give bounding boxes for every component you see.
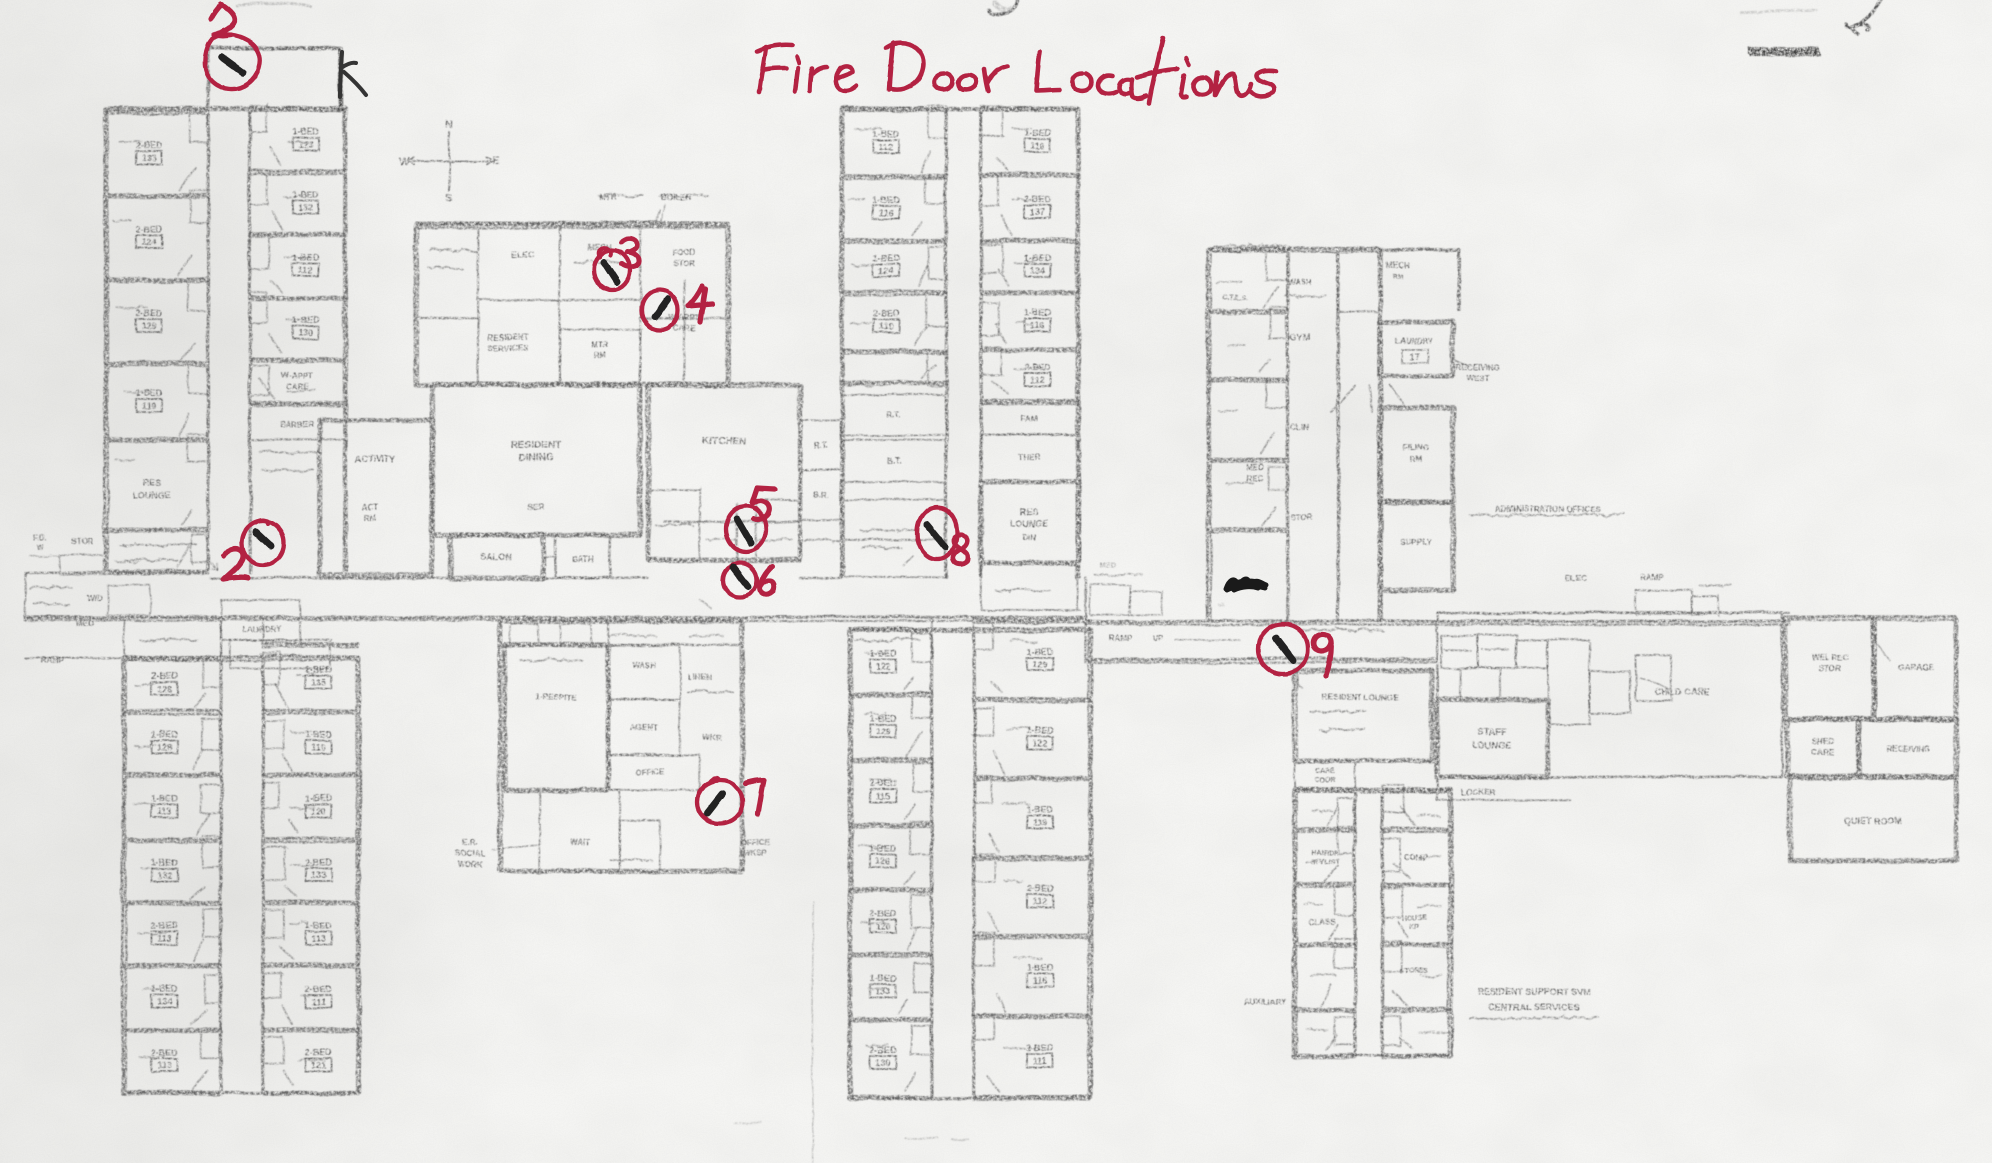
svg-text:135: 135 (311, 678, 326, 688)
svg-text:1-RESPITE: 1-RESPITE (535, 693, 577, 702)
svg-text:LOUNGE: LOUNGE (1473, 740, 1512, 750)
svg-text:112: 112 (879, 142, 894, 152)
svg-text:COMP: COMP (1404, 853, 1429, 862)
svg-text:B.T.: B.T. (887, 457, 901, 466)
svg-text:HOUSE: HOUSE (1402, 915, 1427, 922)
svg-text:2-BED: 2-BED (1026, 884, 1054, 894)
svg-text:122: 122 (1032, 739, 1047, 749)
svg-text:W-APPT: W-APPT (281, 371, 313, 380)
svg-text:116: 116 (1033, 976, 1048, 986)
svg-text:1-BED: 1-BED (1026, 963, 1054, 973)
svg-text:RAMP: RAMP (40, 656, 64, 665)
svg-text:MED: MED (1246, 463, 1264, 472)
svg-text:KP: KP (1409, 924, 1419, 931)
svg-text:2-BED: 2-BED (135, 224, 163, 234)
svg-text:DIN: DIN (1022, 533, 1036, 542)
svg-text:RAMP: RAMP (1108, 634, 1132, 643)
svg-text:1-BED: 1-BED (869, 974, 897, 984)
svg-text:SERVICES: SERVICES (488, 344, 529, 353)
svg-text:BATH: BATH (572, 555, 594, 564)
svg-text:WASH: WASH (632, 661, 656, 670)
svg-text:HAIRDR: HAIRDR (1311, 850, 1338, 857)
svg-text:1-BED: 1-BED (151, 730, 179, 740)
svg-text:1-BED: 1-BED (1026, 805, 1054, 815)
svg-text:RM: RM (364, 513, 377, 522)
svg-text:1-BED: 1-BED (305, 794, 333, 804)
svg-text:WAIT: WAIT (570, 838, 590, 847)
svg-text:SHED: SHED (1812, 737, 1834, 746)
svg-text:119: 119 (879, 322, 894, 332)
svg-text:RESIDENT SUPPORT SVM: RESIDENT SUPPORT SVM (1477, 987, 1591, 997)
svg-text:128: 128 (157, 684, 172, 694)
svg-text:ELEC: ELEC (1565, 574, 1587, 583)
svg-text:E: E (492, 155, 499, 167)
svg-text:SOCIAL: SOCIAL (455, 849, 485, 858)
svg-text:STOR: STOR (673, 259, 695, 268)
svg-text:116: 116 (879, 208, 894, 218)
svg-text:2-BED: 2-BED (151, 671, 179, 681)
svg-text:RES: RES (143, 478, 162, 488)
svg-text:CENTRAL SERVICES: CENTRAL SERVICES (1489, 1002, 1580, 1012)
svg-text:1-BED: 1-BED (292, 190, 320, 200)
svg-text:GYM: GYM (1290, 332, 1311, 342)
svg-text:115: 115 (876, 792, 891, 802)
svg-text:133: 133 (141, 153, 156, 163)
svg-text:FOOD: FOOD (672, 248, 695, 257)
svg-text:sk: sk (1218, 603, 1225, 609)
svg-text:W: W (399, 156, 410, 168)
svg-text:STYLIST: STYLIST (1311, 859, 1341, 866)
svg-text:R.T.: R.T. (887, 411, 901, 420)
svg-text:RM: RM (594, 351, 607, 360)
svg-text:128: 128 (157, 743, 172, 753)
svg-text:RES: RES (1020, 507, 1039, 517)
svg-text:ACT: ACT (362, 503, 379, 512)
svg-text:F.D.: F.D. (33, 533, 47, 542)
svg-text:W/D: W/D (87, 594, 103, 603)
svg-text:BARBER: BARBER (280, 420, 314, 429)
svg-text:WASH: WASH (1288, 278, 1312, 287)
svg-text:E.R.: E.R. (462, 838, 478, 847)
svg-text:137: 137 (1030, 207, 1045, 217)
svg-text:B.R.: B.R. (813, 491, 829, 500)
svg-text:S: S (445, 192, 452, 204)
svg-text:2-BED: 2-BED (305, 1048, 333, 1058)
svg-text:MECH: MECH (1386, 261, 1410, 270)
svg-text:130: 130 (298, 328, 313, 338)
svg-text:AUXILIARY: AUXILIARY (1244, 998, 1287, 1007)
svg-text:121: 121 (311, 1061, 326, 1071)
svg-text:1-BED: 1-BED (872, 253, 900, 263)
svg-text:RECEIVING: RECEIVING (1886, 745, 1930, 754)
svg-text:CHILD CARE: CHILD CARE (1654, 687, 1710, 697)
svg-text:CARE: CARE (673, 324, 696, 333)
svg-text:113: 113 (157, 934, 172, 944)
svg-text:124: 124 (141, 237, 156, 247)
svg-text:1-BED: 1-BED (151, 858, 179, 868)
svg-text:WEL REC: WEL REC (1812, 653, 1849, 662)
svg-text:STOR: STOR (71, 537, 93, 546)
svg-text:LOUNGE: LOUNGE (133, 490, 172, 500)
svg-text:CARE: CARE (1315, 768, 1335, 775)
svg-text:116: 116 (1030, 321, 1045, 331)
svg-text:1-BED: 1-BED (1026, 647, 1054, 657)
svg-text:QUIET ROOM: QUIET ROOM (1844, 816, 1902, 826)
svg-text:113: 113 (311, 934, 326, 944)
svg-text:W: W (36, 543, 44, 552)
svg-text:2-BED: 2-BED (1024, 194, 1052, 204)
svg-text:GARAGE: GARAGE (1898, 663, 1934, 672)
svg-text:ADMINISTRATION OFFICES: ADMINISTRATION OFFICES (1495, 505, 1601, 514)
svg-text:129: 129 (875, 727, 890, 737)
svg-text:R.T.: R.T. (814, 441, 828, 450)
svg-text:FILING: FILING (1403, 443, 1429, 452)
svg-text:SUPPLY: SUPPLY (1400, 538, 1432, 547)
svg-text:AGENT: AGENT (630, 723, 658, 732)
svg-text:1-BED: 1-BED (1026, 726, 1054, 736)
svg-text:STOR: STOR (1291, 513, 1313, 522)
svg-text:1-BED: 1-BED (292, 127, 320, 137)
svg-text:113: 113 (157, 807, 172, 817)
svg-text:COOR: COOR (1315, 777, 1336, 784)
svg-text:134: 134 (1030, 266, 1045, 276)
svg-text:WKSP: WKSP (743, 849, 768, 858)
svg-text:132: 132 (298, 203, 313, 213)
svg-text:SER: SER (528, 503, 545, 512)
svg-text:STOR: STOR (1819, 664, 1841, 673)
svg-text:113: 113 (157, 1061, 172, 1071)
svg-text:STORES: STORES (1400, 968, 1429, 975)
svg-text:1-BED: 1-BED (872, 129, 900, 139)
svg-text:ELEC: ELEC (511, 250, 536, 260)
svg-text:119: 119 (1033, 818, 1048, 828)
svg-text:N: N (445, 119, 453, 131)
svg-text:SALON: SALON (480, 552, 512, 562)
svg-text:17: 17 (1410, 352, 1420, 362)
svg-text:CARE: CARE (286, 382, 309, 391)
svg-text:RESIDENT: RESIDENT (511, 440, 562, 451)
svg-text:129: 129 (1032, 660, 1047, 670)
svg-text:CLIN: CLIN (1291, 423, 1310, 432)
svg-text:1-BED: 1-BED (151, 794, 179, 804)
svg-text:STAFF: STAFF (1478, 727, 1507, 737)
svg-text:110: 110 (1030, 141, 1045, 151)
svg-text:1-BED: 1-BED (869, 844, 897, 854)
svg-text:MTR: MTR (591, 340, 609, 349)
svg-text:112: 112 (1030, 375, 1045, 385)
svg-text:WEST: WEST (1466, 374, 1489, 383)
svg-text:112: 112 (298, 266, 313, 276)
svg-text:OFFICE: OFFICE (635, 768, 665, 777)
svg-text:2-BED: 2-BED (151, 921, 179, 931)
svg-text:ACTIVITY: ACTIVITY (354, 454, 395, 464)
svg-text:LAUNDRY: LAUNDRY (1395, 337, 1434, 346)
svg-text:122: 122 (875, 662, 890, 672)
svg-text:134: 134 (157, 997, 172, 1007)
svg-text:1-BED: 1-BED (1024, 308, 1052, 318)
svg-text:2-BED: 2-BED (872, 309, 900, 319)
svg-text:MTR: MTR (599, 193, 617, 202)
svg-text:132: 132 (157, 871, 172, 881)
svg-text:CARE: CARE (1812, 748, 1835, 757)
svg-text:RESIDENT: RESIDENT (488, 333, 529, 342)
svg-text:1-BED: 1-BED (305, 921, 333, 931)
svg-text:C.T./L.S.: C.T./L.S. (1221, 295, 1248, 302)
svg-text:124: 124 (878, 266, 893, 276)
svg-text:133: 133 (311, 871, 326, 881)
svg-text:126: 126 (875, 857, 890, 867)
svg-text:2-BED: 2-BED (305, 984, 333, 994)
svg-text:RM: RM (1393, 274, 1404, 281)
svg-text:RAMP: RAMP (1640, 573, 1664, 582)
svg-text:THER: THER (1018, 453, 1040, 462)
svg-text:LINEN: LINEN (688, 673, 712, 682)
svg-text:1-BED: 1-BED (1024, 128, 1052, 138)
svg-text:LOCKER: LOCKER (1461, 788, 1495, 797)
svg-text:UP: UP (1152, 634, 1164, 643)
svg-text:2-BED: 2-BED (869, 909, 897, 919)
svg-text:111: 111 (1033, 1056, 1047, 1066)
svg-text:KITCHEN: KITCHEN (702, 436, 746, 447)
svg-text:129: 129 (141, 321, 156, 331)
svg-text:REC: REC (1247, 474, 1264, 483)
svg-text:MED: MED (1100, 562, 1116, 569)
svg-text:CLASS: CLASS (1308, 918, 1336, 927)
svg-text:WORK: WORK (457, 860, 483, 869)
svg-text:OFFICE: OFFICE (740, 838, 770, 847)
svg-text:2-BED: 2-BED (869, 1045, 897, 1055)
svg-text:111: 111 (311, 997, 325, 1007)
svg-text:119: 119 (142, 401, 157, 411)
svg-text:110: 110 (311, 743, 326, 753)
svg-text:LOUNGE: LOUNGE (1010, 519, 1049, 529)
svg-text:WKR: WKR (702, 733, 721, 742)
svg-text:2-BED: 2-BED (135, 308, 163, 318)
svg-text:RESIDENT LOUNGE: RESIDENT LOUNGE (1322, 693, 1400, 702)
svg-text:1-BED: 1-BED (872, 195, 900, 205)
svg-text:112: 112 (1033, 897, 1048, 907)
svg-text:BOILER: BOILER (661, 193, 691, 202)
svg-text:130: 130 (875, 1058, 890, 1068)
svg-text:RM: RM (1410, 455, 1423, 464)
svg-text:FAM: FAM (1021, 414, 1038, 423)
svg-text:DINING: DINING (519, 453, 554, 464)
